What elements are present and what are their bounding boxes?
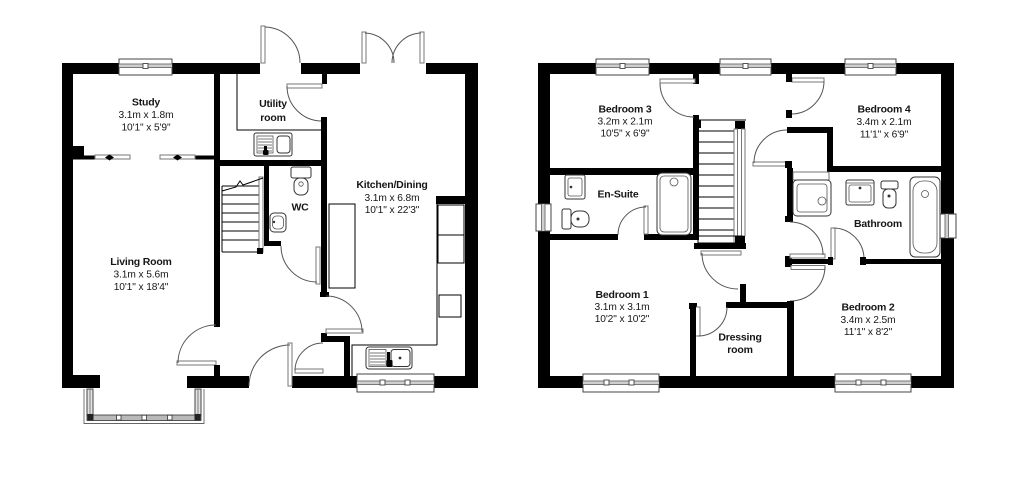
- svg-text:Dressing: Dressing: [718, 332, 761, 344]
- svg-text:Bedroom 2: Bedroom 2: [841, 302, 894, 314]
- svg-text:11'1" x 8'2": 11'1" x 8'2": [844, 327, 893, 338]
- svg-text:10'1" x 5'9": 10'1" x 5'9": [121, 123, 170, 134]
- svg-text:10'5" x 6'9": 10'5" x 6'9": [600, 129, 649, 140]
- svg-text:10'1" x 22'3": 10'1" x 22'3": [365, 205, 420, 216]
- svg-text:Study: Study: [132, 97, 161, 109]
- svg-text:En-Suite: En-Suite: [598, 189, 639, 201]
- svg-text:3.1m x 6.8m: 3.1m x 6.8m: [365, 193, 420, 204]
- svg-text:WC: WC: [291, 202, 309, 214]
- svg-text:Bedroom 4: Bedroom 4: [857, 104, 910, 116]
- svg-text:Kitchen/Dining: Kitchen/Dining: [356, 179, 427, 191]
- svg-text:3.1m x 3.1m: 3.1m x 3.1m: [595, 302, 650, 313]
- svg-text:3.1m x 1.8m: 3.1m x 1.8m: [119, 110, 174, 121]
- svg-text:3.2m x 2.1m: 3.2m x 2.1m: [598, 117, 653, 128]
- svg-text:10'2" x 10'2": 10'2" x 10'2": [595, 314, 650, 325]
- svg-text:room: room: [260, 112, 285, 124]
- svg-text:3.4m x 2.5m: 3.4m x 2.5m: [841, 315, 896, 326]
- svg-text:3.4m x 2.1m: 3.4m x 2.1m: [857, 117, 912, 128]
- svg-text:Living Room: Living Room: [110, 256, 171, 268]
- svg-text:Bedroom 3: Bedroom 3: [598, 104, 651, 116]
- svg-text:Utility: Utility: [259, 98, 287, 110]
- svg-text:10'1" x 18'4": 10'1" x 18'4": [114, 282, 169, 293]
- svg-text:room: room: [727, 344, 752, 356]
- svg-text:11'1" x 6'9": 11'1" x 6'9": [860, 130, 909, 141]
- svg-text:Bedroom 1: Bedroom 1: [595, 289, 648, 301]
- svg-text:Bathroom: Bathroom: [854, 218, 902, 230]
- svg-text:3.1m x 5.6m: 3.1m x 5.6m: [114, 270, 169, 281]
